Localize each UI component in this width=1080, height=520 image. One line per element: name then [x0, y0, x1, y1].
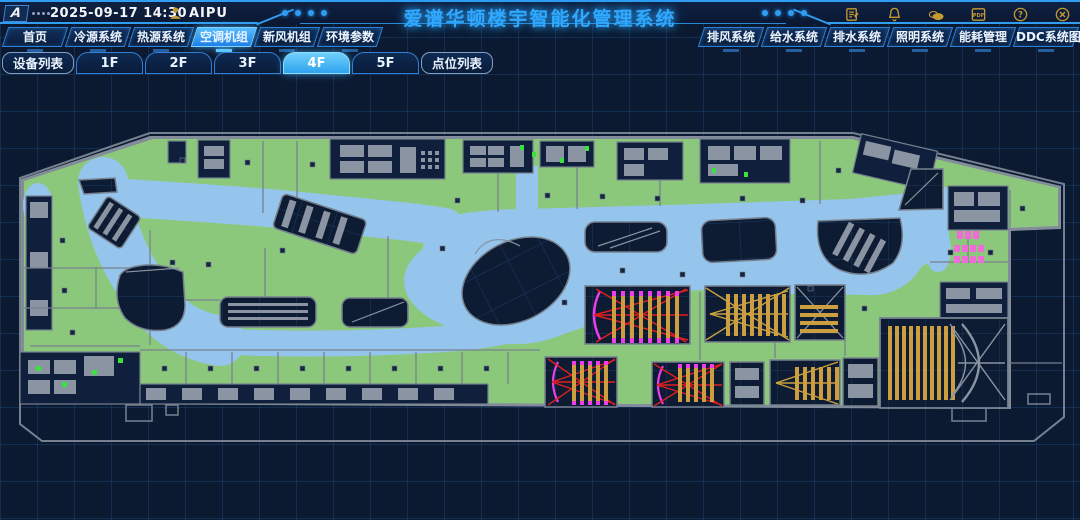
tab-ahu[interactable]: 空调机组: [194, 27, 254, 47]
tab-exhaust[interactable]: 排风系统: [701, 27, 761, 47]
tab-ddc-diagram[interactable]: DDC系统图: [1016, 27, 1076, 47]
deco-dots-right: [762, 10, 807, 16]
tab-lighting[interactable]: 照明系统: [890, 27, 950, 47]
primary-nav: 首页 冷源系统 热源系统 空调机组 新风机组 环境参数 排风系统 给水系统 排水…: [0, 26, 1080, 52]
tab-drainage[interactable]: 排水系统: [827, 27, 887, 47]
escalator-strips-mid: [228, 303, 308, 320]
cinema-imax: [880, 318, 1008, 408]
cinema-service-b3: [730, 362, 764, 405]
tab-cooling-source[interactable]: 冷源系统: [68, 27, 128, 47]
svg-text:?: ?: [1018, 10, 1023, 20]
alarm-bell-icon[interactable]: [884, 4, 904, 24]
tab-energy[interactable]: 能耗管理: [953, 27, 1013, 47]
top-bar: A 2025-09-17 14:30 AIPU 爱谱华顿楼宇智能化管理系统: [0, 0, 1080, 24]
floor-nav: 设备列表 1F 2F 3F 4F 5F 点位列表: [0, 52, 1080, 75]
weather-cloud-icon[interactable]: [926, 4, 946, 24]
floor-plan: [0, 75, 1080, 520]
void-small-parallelogram: [79, 178, 117, 194]
tab-fresh-air[interactable]: 新风机组: [257, 27, 317, 47]
floor-tab-5f[interactable]: 5F: [352, 52, 419, 74]
pdf-export-icon[interactable]: PDF: [968, 4, 988, 24]
cinema-auditorium-a2: [705, 286, 790, 342]
system-tabs-left: 首页 冷源系统 热源系统 空调机组 新风机组 环境参数: [5, 26, 380, 52]
tab-home[interactable]: 首页: [5, 27, 65, 47]
floor-plan-svg: [0, 75, 1080, 520]
log-icon[interactable]: [842, 4, 862, 24]
void-mid-2: [342, 298, 408, 327]
tab-environment[interactable]: 环境参数: [320, 27, 380, 47]
system-tabs-right: 排风系统 给水系统 排水系统 照明系统 能耗管理 DDC系统图: [701, 26, 1076, 52]
floor-tab-2f[interactable]: 2F: [145, 52, 212, 74]
cinema-service-b5: [843, 358, 878, 406]
cinema-auditorium-a3: [795, 285, 845, 340]
cinema-auditorium-a1: [585, 286, 690, 344]
device-list-button[interactable]: 设备列表: [2, 52, 74, 74]
floor-tab-4f[interactable]: 4F: [283, 52, 350, 74]
svg-text:PDF: PDF: [972, 12, 984, 18]
tab-heating-source[interactable]: 热源系统: [131, 27, 191, 47]
floor-tab-1f[interactable]: 1F: [76, 52, 143, 74]
cinema-auditorium-b4: [770, 360, 840, 405]
tab-water-supply[interactable]: 给水系统: [764, 27, 824, 47]
close-icon[interactable]: [1052, 4, 1072, 24]
cinema-auditorium-b2: [652, 362, 724, 407]
help-icon[interactable]: ?: [1010, 4, 1030, 24]
header-icon-bar: PDF ?: [842, 3, 1072, 25]
deco-dots-left: [282, 10, 327, 16]
void-left-blob: [117, 265, 185, 331]
cinema-auditorium-b1: [545, 357, 617, 407]
bms-screen: A 2025-09-17 14:30 AIPU 爱谱华顿楼宇智能化管理系统: [0, 0, 1080, 520]
floor-tab-3f[interactable]: 3F: [214, 52, 281, 74]
void-east-2: [701, 217, 777, 263]
point-list-button[interactable]: 点位列表: [421, 52, 493, 74]
equipment-core-right: [940, 282, 1008, 318]
